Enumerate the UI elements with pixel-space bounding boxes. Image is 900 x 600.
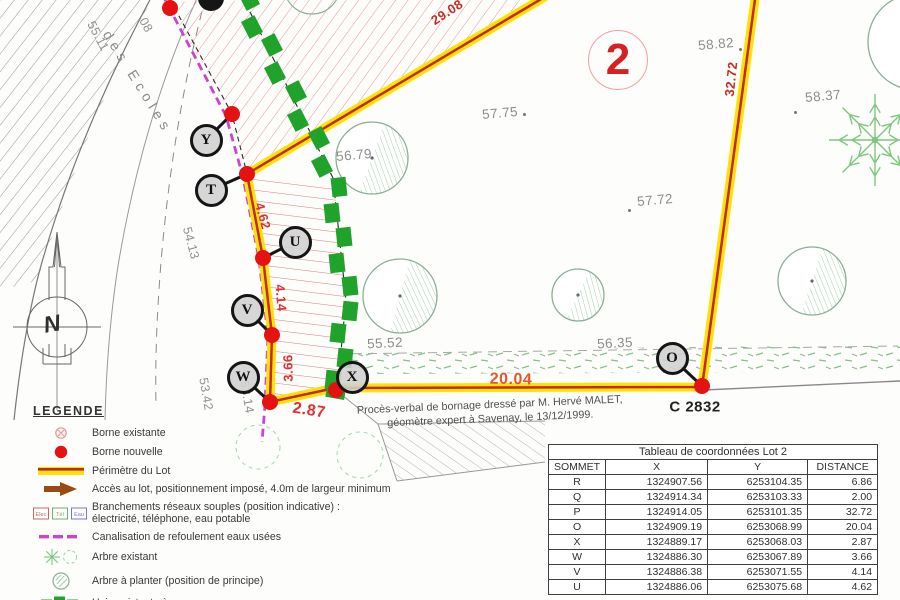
table-title-row: Tableau de coordonnées Lot 2 — [549, 445, 878, 460]
legend-item-haie: Haie existante à conserver — [30, 596, 460, 600]
coord-cell: 3.66 — [808, 550, 878, 565]
survey-plan-canvas: 57.7556.7957.7258.8258.3755.5256.350855.… — [0, 0, 900, 600]
legend-item-label: Borne existante — [92, 427, 166, 439]
legend-item-label: Canalisation de refoulement eaux usées — [92, 531, 281, 543]
coord-cell: 32.72 — [808, 505, 878, 520]
vertex-marker-U: U — [279, 226, 312, 259]
legend-item-label: Branchements réseaux souples (position i… — [92, 501, 340, 525]
legend-item-borne-nouvelle: Borne nouvelle — [30, 445, 460, 459]
vertex-cell: O — [549, 520, 606, 535]
parcel-reference: C 2832 — [669, 399, 720, 416]
lot-number-badge: 2 — [588, 30, 648, 90]
elevation-label: 58.82 — [698, 35, 735, 53]
coord-cell: 1324889.17 — [606, 535, 708, 550]
boundary-point-dot — [162, 0, 178, 16]
elevation-label: 55.52 — [367, 335, 404, 352]
level-dot — [628, 209, 631, 212]
legend-item-arbre-planter: Arbre à planter (position de principe) — [30, 571, 460, 591]
boundary-point-dot — [224, 106, 240, 122]
legend-item-canalisation: Canalisation de refoulement eaux usées — [30, 530, 460, 543]
coord-cell: 6253101.35 — [708, 505, 808, 520]
coord-cell: 20.04 — [808, 520, 878, 535]
elevation-label: 57.72 — [637, 191, 674, 209]
boundary-point-dot — [264, 327, 280, 343]
coord-cell: 4.62 — [808, 580, 878, 595]
elevation-label: 57.75 — [482, 104, 519, 122]
table-row: V1324886.386253071.554.14 — [549, 565, 878, 580]
coord-cell: 6253071.55 — [708, 565, 808, 580]
table-row: X1324889.176253068.032.87 — [549, 535, 878, 550]
branchements-icon: ElecTélEau — [30, 507, 92, 520]
vertex-marker-O: O — [656, 342, 689, 375]
arbre-existant-icon — [30, 548, 92, 566]
elevation-label: 58.37 — [805, 87, 842, 105]
borne-nouvelle-icon — [30, 445, 92, 459]
coord-cell: 6253075.68 — [708, 580, 808, 595]
vertex-cell: Q — [549, 490, 606, 505]
vertex-marker-V: V — [231, 294, 264, 327]
coord-cell: 6.86 — [808, 475, 878, 490]
coord-cell: 6253103.33 — [708, 490, 808, 505]
perimetre-icon — [30, 465, 92, 476]
coord-cell: 1324907.56 — [606, 475, 708, 490]
coord-cell: 1324909.19 — [606, 520, 708, 535]
svg-text:Eau: Eau — [74, 512, 84, 518]
elevation-label: 56.35 — [597, 335, 634, 352]
haie-icon — [30, 596, 92, 600]
svg-text:Elec: Elec — [36, 512, 47, 518]
coord-cell: 4.14 — [808, 565, 878, 580]
level-dot — [523, 113, 526, 116]
road-area — [0, 0, 206, 420]
level-dot — [739, 48, 742, 51]
level-dot — [794, 111, 797, 114]
coordinates-table-wrap: Tableau de coordonnées Lot 2SOMMETXYDIST… — [548, 444, 878, 595]
coord-cell: 1324914.34 — [606, 490, 708, 505]
coord-cell: 6253068.03 — [708, 535, 808, 550]
distance-label: 3.66 — [280, 354, 295, 382]
table-row: W1324886.306253067.893.66 — [549, 550, 878, 565]
boundary-point-dot — [694, 378, 710, 394]
table-row: O1324909.196253068.9920.04 — [549, 520, 878, 535]
column-header: Y — [708, 460, 808, 475]
table-row: R1324907.566253104.356.86 — [549, 475, 878, 490]
coord-cell: 6253068.99 — [708, 520, 808, 535]
column-header: X — [606, 460, 708, 475]
legend-item-branchements: ElecTélEauBranchements réseaux souples (… — [30, 501, 460, 525]
coord-cell: 1324914.05 — [606, 505, 708, 520]
boundary-point-dot — [239, 166, 255, 182]
distance-label: 4.14 — [272, 284, 289, 313]
coord-cell: 1324886.38 — [606, 565, 708, 580]
vertex-cell: X — [549, 535, 606, 550]
legend-item-label: Arbre à planter (position de principe) — [92, 575, 263, 587]
vertex-marker-T: T — [195, 174, 228, 207]
column-header: DISTANCE — [808, 460, 878, 475]
legend-item-perimetre: Périmètre du Lot — [30, 464, 460, 477]
table-title: Tableau de coordonnées Lot 2 — [549, 445, 878, 460]
legend-item-borne-existante: Borne existante — [30, 426, 460, 440]
vertex-cell: V — [549, 565, 606, 580]
coord-cell: 2.00 — [808, 490, 878, 505]
vertex-marker-X: X — [336, 361, 369, 394]
legend-item-label: Arbre existant — [92, 551, 157, 563]
vertex-marker-W: W — [227, 361, 260, 394]
vertex-cell: P — [549, 505, 606, 520]
coord-cell: 1324886.06 — [606, 580, 708, 595]
coordinates-table: Tableau de coordonnées Lot 2SOMMETXYDIST… — [548, 444, 878, 595]
legend: LEGENDE Borne existanteBorne nouvellePér… — [30, 404, 460, 600]
vertex-cell: R — [549, 475, 606, 490]
table-row: P1324914.056253101.3532.72 — [549, 505, 878, 520]
borne-existante-icon — [30, 426, 92, 440]
table-row: U1324886.066253075.684.62 — [549, 580, 878, 595]
legend-item-label: Haie existante à conserver — [92, 597, 217, 600]
table-row: Q1324914.346253103.332.00 — [549, 490, 878, 505]
coord-cell: 6253067.89 — [708, 550, 808, 565]
svg-text:Tél: Tél — [56, 512, 64, 518]
legend-item-arbre-existant: Arbre existant — [30, 548, 460, 566]
boundary-point-dot — [255, 250, 271, 266]
table-header-row: SOMMETXYDISTANCE — [549, 460, 878, 475]
legend-item-acces: Accès au lot, positionnement imposé, 4.0… — [30, 482, 460, 496]
coord-cell: 2.87 — [808, 535, 878, 550]
coord-cell: 6253104.35 — [708, 475, 808, 490]
vertex-cell: W — [549, 550, 606, 565]
vertex-marker-Y: Y — [190, 124, 223, 157]
parcel-line — [704, 381, 900, 390]
canalisation-icon — [30, 534, 92, 540]
vertex-cell: U — [549, 580, 606, 595]
distance-label: 20.04 — [490, 371, 533, 390]
lot-number: 2 — [606, 35, 630, 85]
arbre-planter-icon — [30, 571, 92, 591]
legend-item-label: Accès au lot, positionnement imposé, 4.0… — [92, 483, 391, 495]
coord-cell: 1324886.30 — [606, 550, 708, 565]
legend-item-label: Périmètre du Lot — [92, 465, 170, 477]
acces-icon — [30, 482, 92, 496]
column-header: SOMMET — [549, 460, 606, 475]
legend-item-label: Borne nouvelle — [92, 446, 163, 458]
existing-tree-symbol — [829, 94, 900, 186]
elevation-label: 56.79 — [336, 146, 373, 164]
legend-title: LEGENDE — [33, 404, 460, 418]
